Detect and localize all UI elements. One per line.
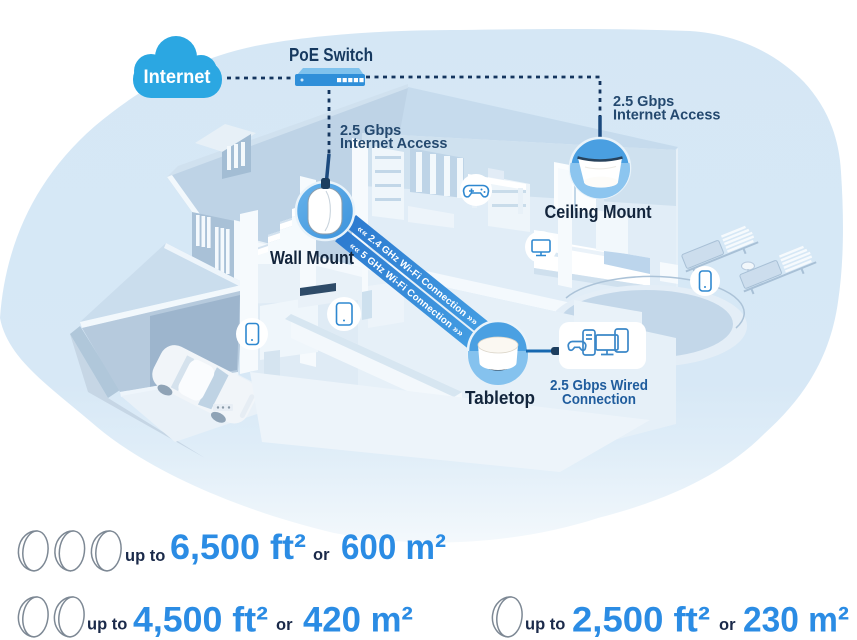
svg-text:up to: up to xyxy=(87,616,127,634)
svg-text:or: or xyxy=(313,546,330,564)
svg-text:420 m²: 420 m² xyxy=(303,600,413,640)
svg-text:or: or xyxy=(276,616,293,634)
svg-text:Wall Mount: Wall Mount xyxy=(270,248,354,268)
svg-text:Internet: Internet xyxy=(144,67,212,88)
svg-text:230 m²: 230 m² xyxy=(743,600,849,640)
svg-text:up to: up to xyxy=(525,616,565,634)
svg-text:4,500 ft²: 4,500 ft² xyxy=(133,600,268,640)
svg-text:600 m²: 600 m² xyxy=(341,527,446,567)
svg-text:Connection: Connection xyxy=(562,391,636,408)
svg-text:Internet Access: Internet Access xyxy=(613,108,720,124)
svg-text:Internet Access: Internet Access xyxy=(340,136,447,152)
svg-text:or: or xyxy=(719,616,736,634)
svg-text:PoE Switch: PoE Switch xyxy=(289,45,373,65)
svg-text:Ceiling Mount: Ceiling Mount xyxy=(545,202,652,222)
svg-text:Tabletop: Tabletop xyxy=(465,388,535,408)
svg-text:up to: up to xyxy=(125,547,165,565)
svg-text:6,500 ft²: 6,500 ft² xyxy=(170,527,306,567)
svg-text:2,500 ft²: 2,500 ft² xyxy=(572,600,710,640)
